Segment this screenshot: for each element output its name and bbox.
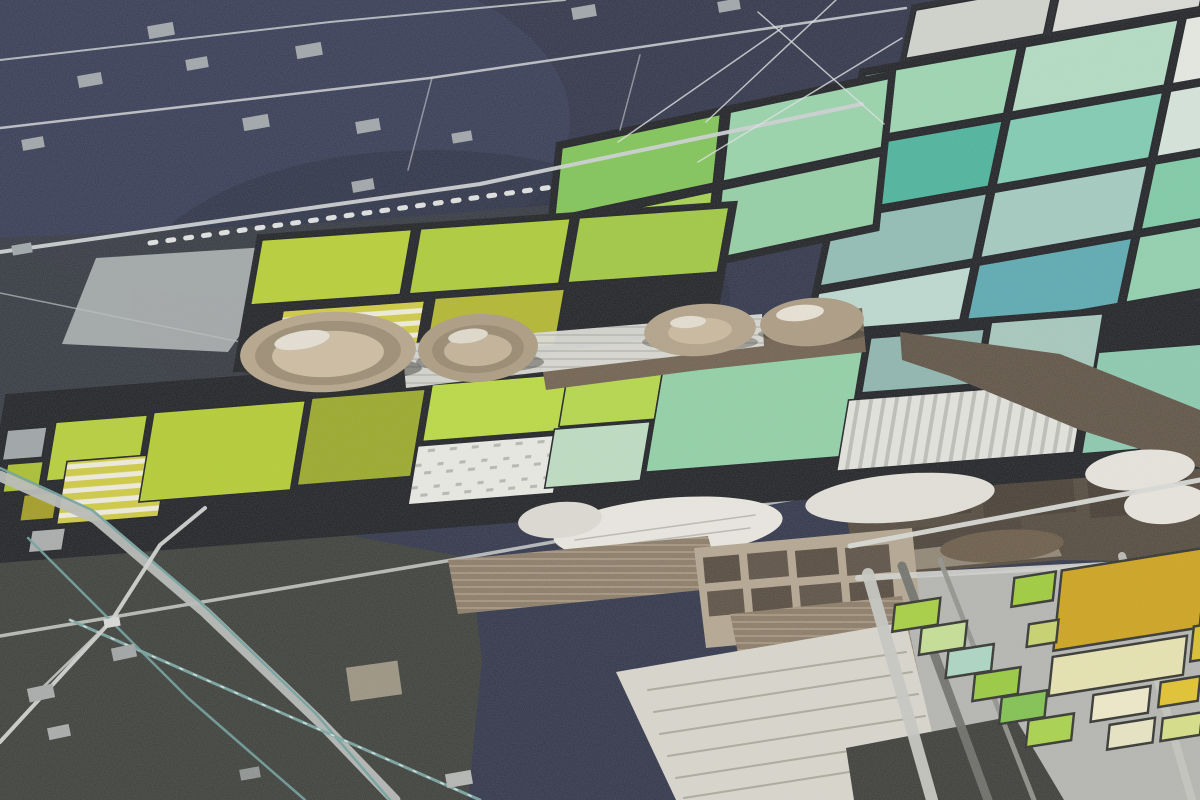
photo-grain (0, 0, 1200, 800)
aerial-photo (0, 0, 1200, 800)
scene-layers (0, 0, 1200, 800)
aerial-scene-svg (0, 0, 1200, 800)
